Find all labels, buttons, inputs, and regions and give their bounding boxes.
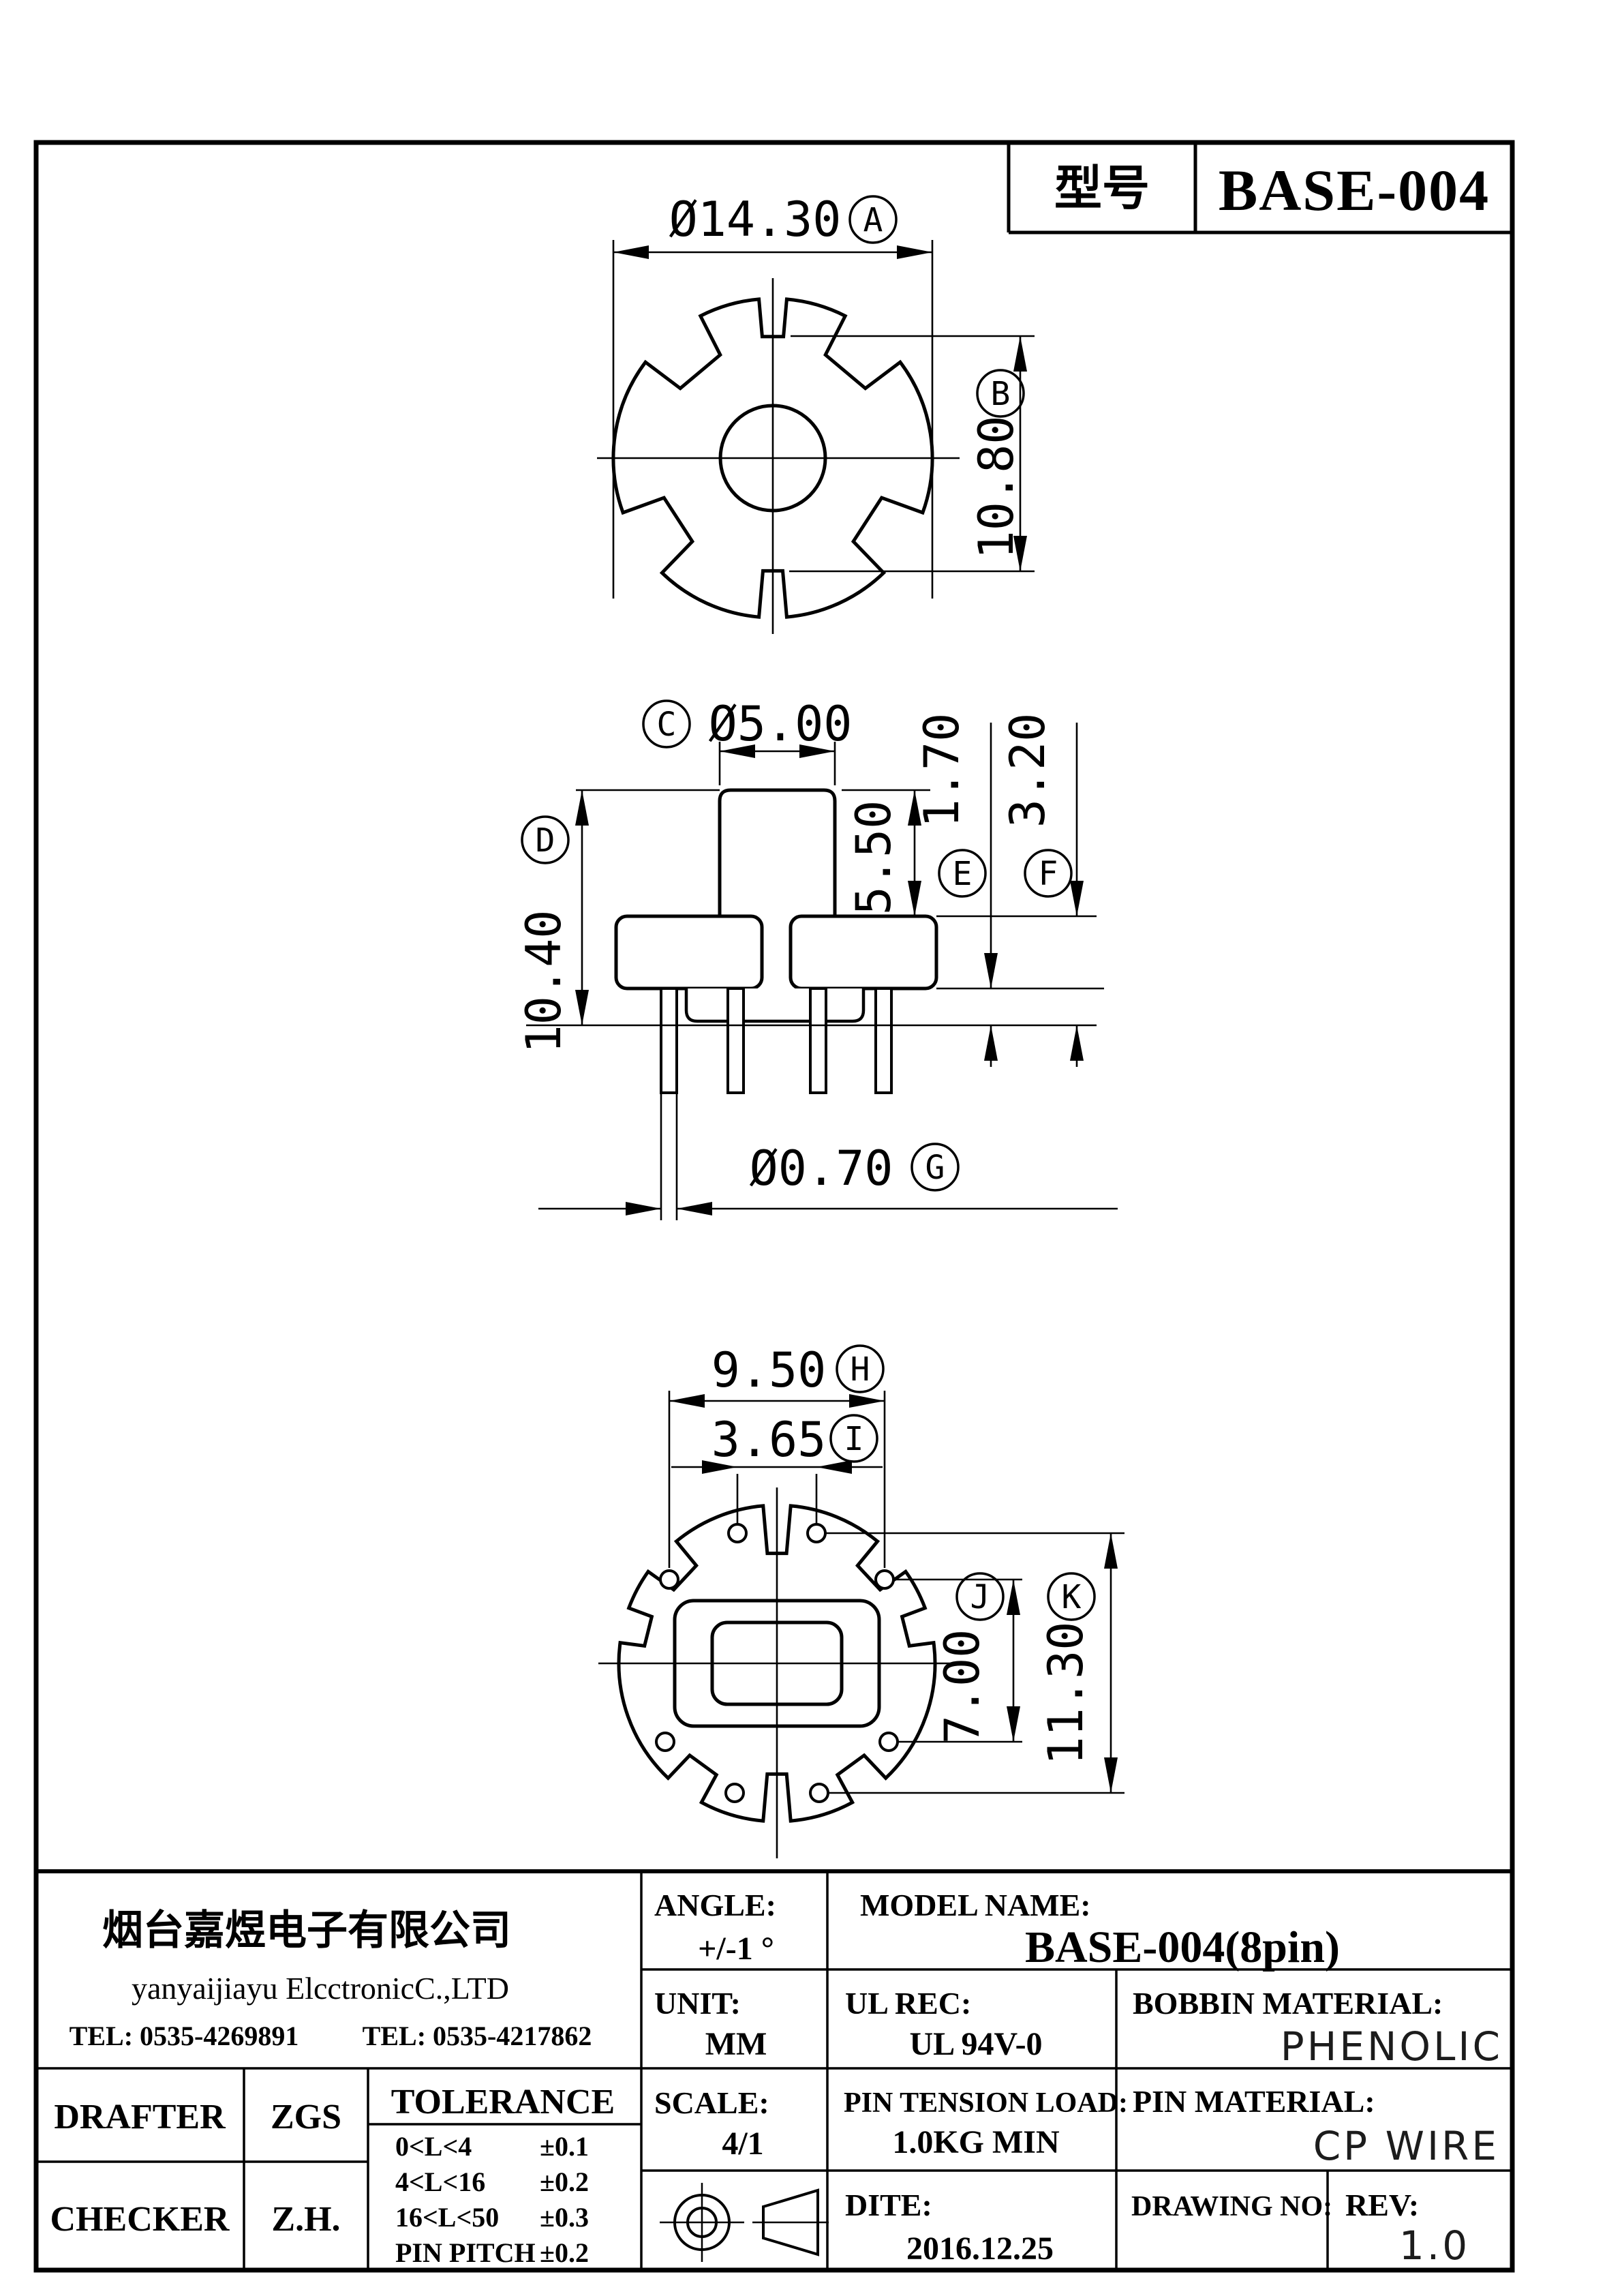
scale-label: SCALE: <box>654 2085 769 2120</box>
dim-text-F: 3.20 <box>1000 713 1056 828</box>
side-view-flange-right <box>791 916 936 988</box>
checker-value: Z.H. <box>271 2200 340 2239</box>
scale-value: 4/1 <box>722 2126 763 2162</box>
tolerance-range: 4<L<16 <box>395 2166 485 2197</box>
model-box-label: 型号 <box>1054 163 1150 215</box>
company-tel-1: TEL: 0535-4269891 <box>70 2021 299 2051</box>
tolerance-value: ±0.2 <box>540 2166 589 2197</box>
pin-1 <box>661 988 677 1093</box>
tolerance-range: PIN PITCH <box>395 2237 536 2268</box>
tolerance-value: ±0.1 <box>540 2131 589 2162</box>
date-value: 2016.12.25 <box>906 2231 1054 2267</box>
unit-value: MM <box>705 2026 767 2062</box>
dim-text-A: Ø14.30 <box>669 192 842 247</box>
tolerance-value: ±0.2 <box>540 2237 589 2268</box>
side-view-cylinder <box>720 790 835 916</box>
pin-4 <box>876 988 891 1093</box>
balloon-letter-B: B <box>991 375 1011 413</box>
checker-label: CHECKER <box>50 2200 230 2239</box>
balloon-letter-I: I <box>844 1420 864 1458</box>
tolerance-range: 16<L<50 <box>395 2202 499 2233</box>
company-tel-2: TEL: 0535-4217862 <box>363 2021 592 2051</box>
drafter-value: ZGS <box>271 2098 341 2136</box>
model-box-value: BASE-004 <box>1219 157 1490 223</box>
pin-tension-load-value: 1.0KG MIN <box>892 2124 1060 2160</box>
bobbin-material-label: BOBBIN MATERIAL: <box>1133 1986 1443 2021</box>
balloon-letter-A: A <box>863 201 883 239</box>
balloon-letter-E: E <box>953 855 973 893</box>
angle-label: ANGLE: <box>654 1888 776 1922</box>
drafter-label: DRAFTER <box>54 2098 226 2136</box>
unit-label: UNIT: <box>654 1986 741 2021</box>
pin-tension-load-label: PIN TENSION LOAD: <box>844 2087 1128 2119</box>
dim-text-J: 7.00 <box>934 1629 990 1744</box>
dim-text-B: 10.80 <box>968 416 1024 560</box>
dim-text-K: 11.30 <box>1038 1622 1094 1766</box>
angle-value: +/-1 ° <box>698 1931 774 1967</box>
tolerance-range: 0<L<4 <box>395 2131 472 2162</box>
dim-text-550: 5.50 <box>846 800 902 916</box>
balloon-letter-H: H <box>851 1350 870 1389</box>
pin-material-value: CP WIRE <box>1313 2123 1499 2169</box>
rev-value: 1.0 <box>1399 2222 1470 2269</box>
pin-3 <box>810 988 826 1093</box>
side-view-flange-left <box>616 916 762 988</box>
balloon-letter-F: F <box>1039 855 1058 893</box>
balloon-letter-K: K <box>1062 1578 1082 1616</box>
dim-text-D: 10.40 <box>516 910 572 1054</box>
ul-rec-value: UL 94V-0 <box>909 2026 1042 2062</box>
balloon-letter-C: C <box>657 706 677 744</box>
tolerance-title: TOLERANCE <box>391 2083 615 2121</box>
balloon-letter-J: J <box>970 1578 990 1616</box>
tolerance-value: ±0.3 <box>540 2202 589 2233</box>
dim-text-G: Ø0.70 <box>750 1141 893 1196</box>
dim-text-E: 1.70 <box>914 713 970 828</box>
dim-text-I: 3.65 <box>711 1412 827 1468</box>
engineering-drawing-sheet: 型号 BASE-004 Ø14.30 A B <box>0 0 1622 2296</box>
bobbin-material-value: PHENOLIC <box>1281 2023 1503 2070</box>
pin-material-label: PIN MATERIAL: <box>1133 2084 1375 2119</box>
drawing-no-label: DRAWING NO: <box>1131 2191 1332 2222</box>
company-name-en: yanyaijiayu ElcctronicC.,LTD <box>132 1971 509 2006</box>
pin-2 <box>728 988 744 1093</box>
balloon-letter-G: G <box>925 1149 945 1187</box>
company-name-cn: 烟台嘉煜电子有限公司 <box>102 1908 511 1953</box>
model-name-label: MODEL NAME: <box>860 1888 1091 1922</box>
balloon-letter-D: D <box>536 821 555 860</box>
dim-text-H: 9.50 <box>711 1342 827 1398</box>
date-label: DITE: <box>845 2188 932 2222</box>
model-name-value: BASE-004(8pin) <box>1025 1922 1340 1972</box>
ul-rec-label: UL REC: <box>845 1986 971 2021</box>
rev-label: REV: <box>1345 2188 1419 2222</box>
dim-text-C: Ø5.00 <box>709 696 853 752</box>
side-view-lower-hub <box>686 988 863 1021</box>
